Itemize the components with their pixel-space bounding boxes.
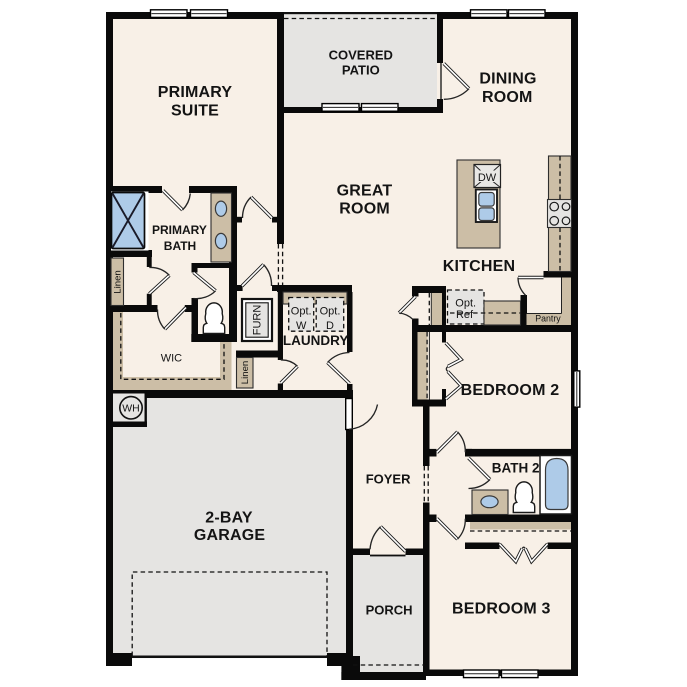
svg-text:BEDROOM 2: BEDROOM 2: [461, 382, 560, 399]
svg-text:BEDROOM 3: BEDROOM 3: [452, 601, 551, 618]
svg-text:PRIMARY: PRIMARY: [152, 223, 207, 237]
svg-text:KITCHEN: KITCHEN: [443, 258, 516, 275]
svg-text:DW: DW: [478, 172, 497, 184]
svg-text:BATH 2: BATH 2: [492, 460, 540, 475]
svg-text:2-BAY: 2-BAY: [205, 510, 253, 527]
svg-text:Linen: Linen: [113, 270, 124, 293]
svg-text:PRIMARY: PRIMARY: [158, 84, 233, 101]
svg-text:Linen: Linen: [240, 361, 251, 384]
svg-text:Ref: Ref: [456, 309, 474, 321]
svg-text:ROOM: ROOM: [482, 89, 533, 106]
svg-text:GREAT: GREAT: [337, 182, 393, 199]
svg-text:PATIO: PATIO: [342, 63, 380, 78]
svg-text:Pantry: Pantry: [535, 313, 561, 323]
svg-text:W: W: [296, 320, 307, 332]
svg-text:Opt.: Opt.: [455, 298, 476, 310]
svg-text:WIC: WIC: [161, 353, 182, 365]
svg-text:PORCH: PORCH: [366, 603, 413, 618]
svg-text:Opt.: Opt.: [320, 306, 341, 318]
svg-text:COVERED: COVERED: [329, 48, 393, 63]
svg-text:FOYER: FOYER: [366, 472, 411, 487]
svg-text:FURN: FURN: [252, 305, 264, 336]
svg-text:D: D: [326, 320, 334, 332]
svg-text:WH: WH: [122, 403, 140, 415]
svg-text:DINING: DINING: [479, 70, 536, 87]
svg-text:SUITE: SUITE: [171, 103, 219, 120]
svg-text:ROOM: ROOM: [339, 201, 390, 218]
svg-text:GARAGE: GARAGE: [194, 527, 266, 544]
svg-text:Opt.: Opt.: [291, 306, 312, 318]
svg-text:BATH: BATH: [164, 239, 196, 253]
svg-text:LAUNDRY: LAUNDRY: [283, 333, 349, 348]
